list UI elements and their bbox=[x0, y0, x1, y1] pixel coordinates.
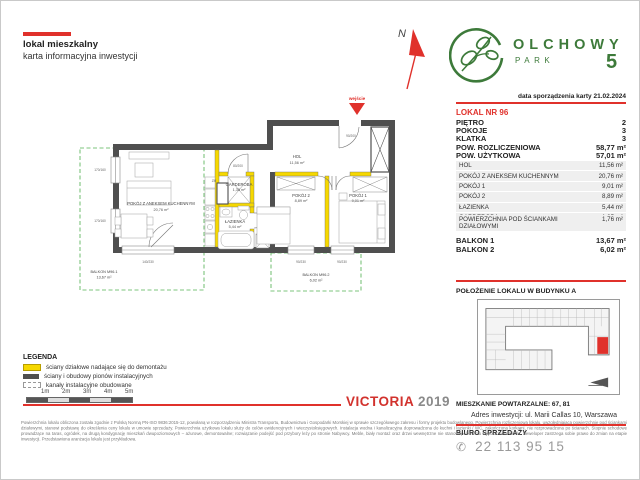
dim-label: 140/230 bbox=[142, 260, 154, 264]
room-label: ŁAZIENKA bbox=[225, 219, 245, 224]
scale-tick: 4m bbox=[104, 389, 112, 395]
dashed-duct-swatch bbox=[23, 382, 41, 388]
dim-label: 90/230 bbox=[296, 260, 306, 264]
room-label: HOL bbox=[293, 154, 302, 159]
brand-number: 5 bbox=[606, 51, 617, 74]
divider bbox=[456, 280, 626, 282]
north-arrow: N bbox=[391, 15, 437, 93]
building-outline bbox=[486, 309, 609, 370]
highlighted-unit bbox=[597, 337, 608, 354]
partition-area-row: POWIERZCHNIA POD ŚCIANKAMI DZIAŁOWYMI1,7… bbox=[456, 215, 626, 231]
doc-type-subtitle: karta informacyjna inwestycji bbox=[23, 51, 138, 61]
yellow-wall-swatch bbox=[23, 364, 41, 371]
info-card: lokal mieszkalny karta informacyjna inwe… bbox=[0, 0, 640, 480]
scale-tick: 3m bbox=[83, 389, 91, 395]
scale-bar bbox=[26, 397, 133, 403]
entrance-marker: wejście bbox=[348, 96, 366, 115]
north-label: N bbox=[398, 28, 406, 40]
balcony-label: BALKON M96.1 bbox=[90, 270, 117, 274]
balcony-area-table: BALKON 113,67 m² BALKON 26,02 m² bbox=[456, 237, 626, 254]
map-north-icon bbox=[588, 378, 608, 388]
divider bbox=[23, 404, 341, 406]
legend-item: ściany działowe nadające się do demontaż… bbox=[23, 364, 167, 370]
dark-wall-swatch bbox=[23, 374, 39, 379]
doc-type-title: lokal mieszkalny bbox=[23, 39, 98, 50]
scale-tick: 5m bbox=[125, 389, 133, 395]
repeatable-units: MIESZKANIE POWTARZALNE: 67, 81 bbox=[456, 401, 570, 408]
legend-title: LEGENDA bbox=[23, 354, 57, 361]
svg-text:9,01 m²: 9,01 m² bbox=[352, 199, 366, 203]
room-label: POKÓJ 2 bbox=[292, 193, 310, 198]
summary-row: POW. UŻYTKOWA57,01 m² bbox=[456, 152, 626, 160]
balcony-label: BALKON M96.2 bbox=[302, 273, 329, 277]
dim-label: 90/230 bbox=[337, 260, 347, 264]
kitchen-unit-label: ZM bbox=[212, 179, 217, 183]
svg-text:6,02 m²: 6,02 m² bbox=[310, 279, 324, 283]
room-label: POKÓJ 1 bbox=[349, 193, 367, 198]
building-map bbox=[477, 299, 620, 395]
svg-text:20,76 m²: 20,76 m² bbox=[154, 208, 170, 212]
installation-shaft bbox=[371, 127, 389, 172]
brand-sub: PARK bbox=[515, 56, 554, 65]
svg-text:11,56 m²: 11,56 m² bbox=[290, 161, 305, 165]
dim-label: 170/160 bbox=[94, 219, 106, 223]
entrance-arrow-icon bbox=[349, 103, 365, 115]
location-title: POŁOŻENIE LOKALU W BUDYNKU A bbox=[456, 288, 576, 295]
olchowy-leaf-icon bbox=[449, 25, 505, 83]
balcony-2-outline bbox=[271, 253, 361, 291]
legend-item: kanały instalacyjne obudowane bbox=[23, 382, 132, 388]
divider bbox=[456, 102, 626, 104]
legal-fine-print: Powierzchnia lokalu obliczona została zg… bbox=[21, 420, 627, 442]
room-row: POKÓJ 28,89 m² bbox=[456, 192, 626, 201]
dim-label: 80/200 bbox=[233, 164, 243, 168]
brand-logo: OLCHOWY PARK 5 bbox=[449, 25, 634, 89]
unit-number-title: LOKAL NR 96 bbox=[456, 108, 508, 117]
svg-text:8,89 m²: 8,89 m² bbox=[295, 199, 309, 203]
dim-label: 170/160 bbox=[94, 168, 106, 172]
floor-plan: wejście POKÓJ Z ANEKSEM KUCHENNYM 20,76 … bbox=[19, 87, 443, 401]
room-label: GARDEROBA bbox=[226, 182, 253, 187]
svg-text:wejście: wejście bbox=[348, 96, 366, 101]
unit-summary-table: PIĘTRO2 POKOJE3 KLATKA3 POW. ROZLICZENIO… bbox=[456, 119, 626, 160]
dim-label: 90/200 bbox=[346, 134, 356, 138]
scale-tick: 1m bbox=[41, 389, 49, 395]
legend-item: ściany i obudowy pionów instalacyjnych bbox=[23, 373, 153, 379]
svg-text:13,67 m²: 13,67 m² bbox=[97, 276, 113, 280]
room-area-table: HOL11,56 m² POKÓJ Z ANEKSEM KUCHENNYM20,… bbox=[456, 161, 626, 223]
investment-address: Adres inwestycji: ul. Marii Callas 10, W… bbox=[471, 412, 617, 419]
scale-tick: 2m bbox=[62, 389, 70, 395]
developer-logo: VICTORIA 2019 bbox=[346, 394, 450, 409]
header-accent-bar bbox=[23, 32, 71, 36]
card-date: data sporządzenia karty 21.02.2024 bbox=[456, 93, 626, 100]
room-row: ŁAZIENKA5,44 m² bbox=[456, 203, 626, 212]
svg-text:5,44 m²: 5,44 m² bbox=[229, 225, 243, 229]
balcony-row: BALKON 26,02 m² bbox=[456, 246, 626, 255]
room-label: POKÓJ Z ANEKSEM KUCHENNYM bbox=[127, 201, 195, 206]
phone-icon: ✆ bbox=[456, 440, 467, 454]
room-row: POKÓJ 19,01 m² bbox=[456, 182, 626, 191]
room-row: POKÓJ Z ANEKSEM KUCHENNYM20,76 m² bbox=[456, 171, 626, 180]
room-row: HOL11,56 m² bbox=[456, 161, 626, 170]
svg-text:1,35 m²: 1,35 m² bbox=[233, 188, 247, 192]
north-arrowhead bbox=[409, 29, 425, 57]
